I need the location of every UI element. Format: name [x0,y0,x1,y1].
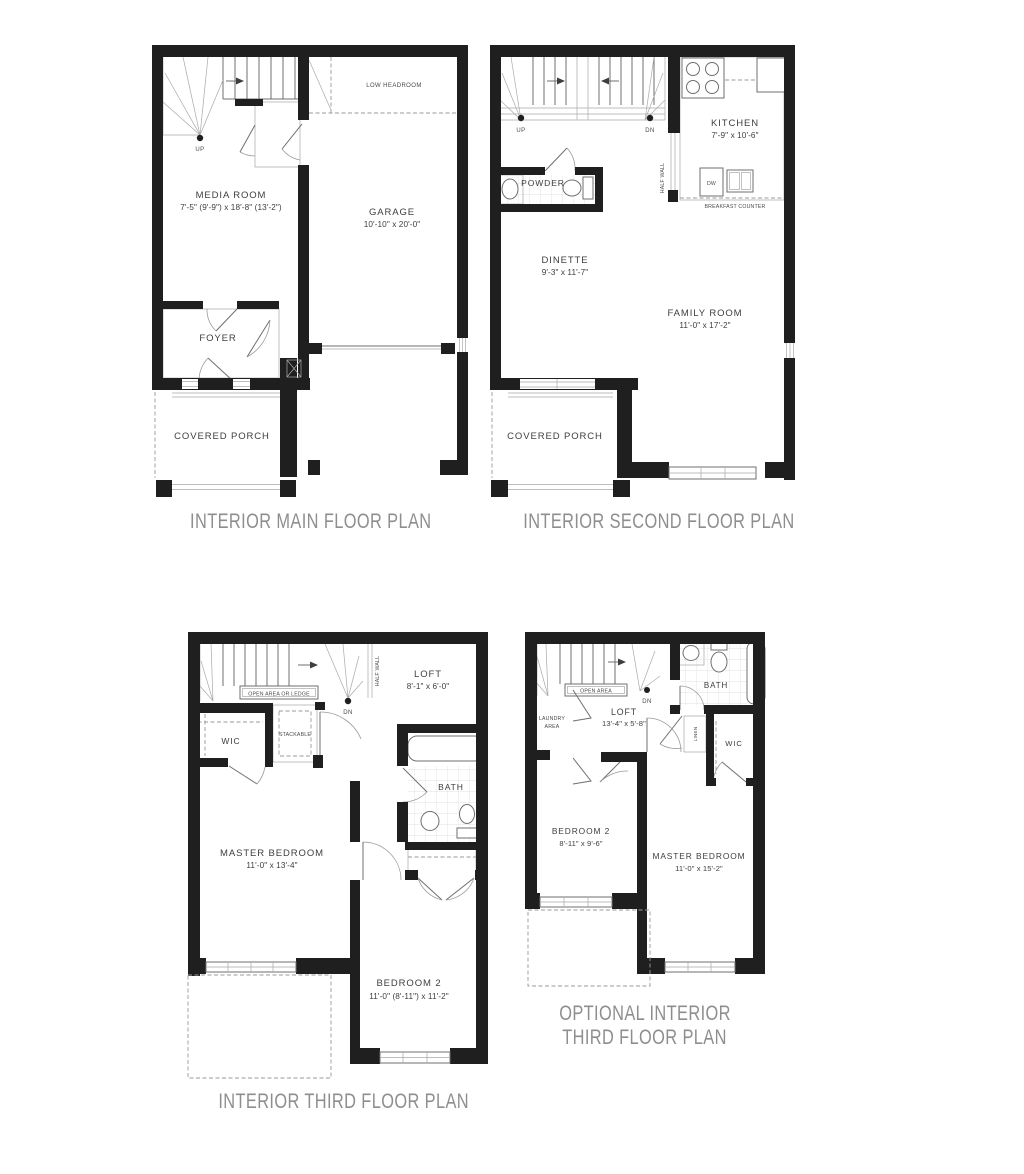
porch-post [156,480,172,497]
bedroom2-closet [408,850,476,900]
second-floor-plan: UP DN DW BREAKFAST COUNTER HALF WALL [485,40,800,510]
toilet-tank [457,828,479,838]
master-bedroom-dims: 11'-0" x 13'-4" [246,861,297,870]
laundry-label-1: LAUNDRY [539,716,565,722]
porch-post [280,480,296,497]
second-floor-caption: INTERIOR SECOND FLOOR PLAN [485,510,800,534]
covered-porch-main [155,392,296,497]
bath-sink [421,812,439,831]
laundry-label-2: AREA [545,724,560,730]
media-room-dims: 7'-5" (9'-9") x 18'-8" (13'-2") [180,203,282,212]
dn-marker-dot [644,687,650,693]
family-room-label: FAMILY ROOM [667,308,742,319]
stackable-label: STACKABLE [279,732,311,738]
floor-plan-sheet: { "colors": {"wall":"#1f1f1f","thin_line… [0,0,1024,1174]
family-room-dims: 11'-0" x 17'-2" [679,321,730,330]
master-bedroom-label: MASTER BEDROOM [652,851,745,861]
garage-door-and-header [320,346,441,471]
dn-marker-dot [647,115,653,121]
third-floor-plan-drawing: OPEN AREA OR LEDGE HALF WALL DN WIC STAC… [183,626,493,1086]
bathtub [408,736,483,761]
breakfast-counter-label: BREAKFAST COUNTER [705,204,766,210]
half-wall-label: HALF WALL [660,163,666,193]
kitchen-label: KITCHEN [711,118,759,129]
room-labels-second: KITCHEN 7'-9" x 10'-6" POWDER DINETTE 9'… [507,118,759,442]
main-floor-caption: INTERIOR MAIN FLOOR PLAN [148,510,473,534]
master-window [665,958,735,974]
wic-area [713,721,758,782]
dn-label: DN [343,710,352,716]
loft-dims: 8'-1" x 6'-0" [407,682,450,691]
linen-label: LINEN [693,727,698,742]
powder-sink [502,179,518,199]
stair-arrow-left [601,78,609,85]
loft-label: LOFT [611,707,637,717]
dn-label: DN [642,699,651,705]
bedroom2-label: BEDROOM 2 [552,826,610,836]
main-floor-plan-drawing: UP LOW HEADROOM [148,40,473,510]
low-headroom-label: LOW HEADROOM [366,83,421,89]
family-room-window [669,462,756,479]
dinette-dims: 9'-3" x 11'-7" [542,268,589,277]
toilet-tank [583,177,593,199]
walls-main [152,45,468,477]
bath-label: BATH [704,681,728,690]
porch-post [491,480,508,497]
wic-area: WIC [191,714,265,784]
stair-arrow [310,662,318,669]
foyer-label: FOYER [199,333,236,344]
room-labels-main: MEDIA ROOM 7'-5" (9'-9") x 18'-8" (13'-2… [174,190,420,442]
loft-label: LOFT [414,669,442,680]
media-room-label: MEDIA ROOM [196,190,267,201]
optional-third-floor-plan: OPEN AREA DN LAUNDRY AREA LINEN [520,626,770,1056]
main-floor-plan: UP LOW HEADROOM [148,40,473,510]
stairs-updn: UP DN [500,57,665,134]
open-area-label: OPEN AREA [580,689,612,695]
third-floor-caption: INTERIOR THIRD FLOOR PLAN [183,1090,493,1114]
stair-arrow-right [557,78,565,85]
garage-label: GARAGE [369,207,415,218]
loft-dims: 13'-4" x 5'-8" [602,719,646,728]
master-window [206,958,296,974]
master-bedroom-dims: 11'-0" x 15'-2" [675,864,723,873]
bedroom2-window [540,893,612,909]
bedroom2-label: BEDROOM 2 [376,978,441,989]
kitchen-sink [727,170,753,192]
dinette-label: DINETTE [542,255,589,266]
optional-third-floor-drawing: OPEN AREA DN LAUNDRY AREA LINEN [520,626,770,1056]
porch-post [613,480,630,497]
dn-marker-dot [345,698,351,704]
open-area-ledge-label: OPEN AREA OR LEDGE [248,692,310,698]
dw-label: DW [707,181,716,187]
laundry-area: LAUNDRY AREA [539,690,591,784]
optional-third-floor-caption: OPTIONAL INTERIOR THIRD FLOOR PLAN [520,1002,770,1050]
stair-direction-arrow [236,78,244,85]
low-headroom-area: LOW HEADROOM [309,57,457,113]
roof-below-dashed [188,975,331,1078]
bath-label: BATH [438,782,464,792]
stair-arrow [618,659,626,666]
master-door [363,842,401,880]
walls-second [490,45,795,480]
up-marker-dot [518,115,524,121]
porch-window [520,379,595,389]
covered-porch-label: COVERED PORCH [174,431,270,442]
covered-porch-label: COVERED PORCH [507,431,603,442]
stairs-dn: OPEN AREA DN [535,644,660,705]
second-floor-plan-drawing: UP DN DW BREAKFAST COUNTER HALF WALL [485,40,800,510]
bedroom2-dims: 11'-0" (8'-11") x 11'-2" [369,992,449,1001]
toilet [460,805,475,824]
third-floor-plan: OPEN AREA OR LEDGE HALF WALL DN WIC STAC… [183,626,493,1086]
roof-below-dashed [528,910,650,986]
garage-side-window [457,338,468,352]
powder-label: POWDER [521,178,565,188]
half-wall-label: HALF WALL [375,656,381,686]
toilet [563,180,581,196]
wic-label: WIC [221,736,240,746]
garage-dims: 10'-10" x 20'-0" [364,220,421,229]
side-window [784,343,795,358]
dn-label: DN [645,128,654,134]
toilet [711,652,727,672]
stairs-up: UP [163,57,298,153]
up-label: UP [195,147,204,153]
linen-closet: LINEN [660,716,706,752]
bath-sink [683,646,699,661]
bedroom2-window [380,1048,450,1064]
wic-label: WIC [725,739,742,748]
up-label: UP [516,128,525,134]
kitchen-dims: 7'-9" x 10'-6" [711,131,758,140]
covered-porch-second [491,392,630,497]
garage-door-dashed [320,464,440,471]
up-marker-dot [197,135,203,141]
master-bedroom-label: MASTER BEDROOM [220,848,324,859]
bedroom2-dims: 8'-11" x 9'-6" [559,839,603,848]
